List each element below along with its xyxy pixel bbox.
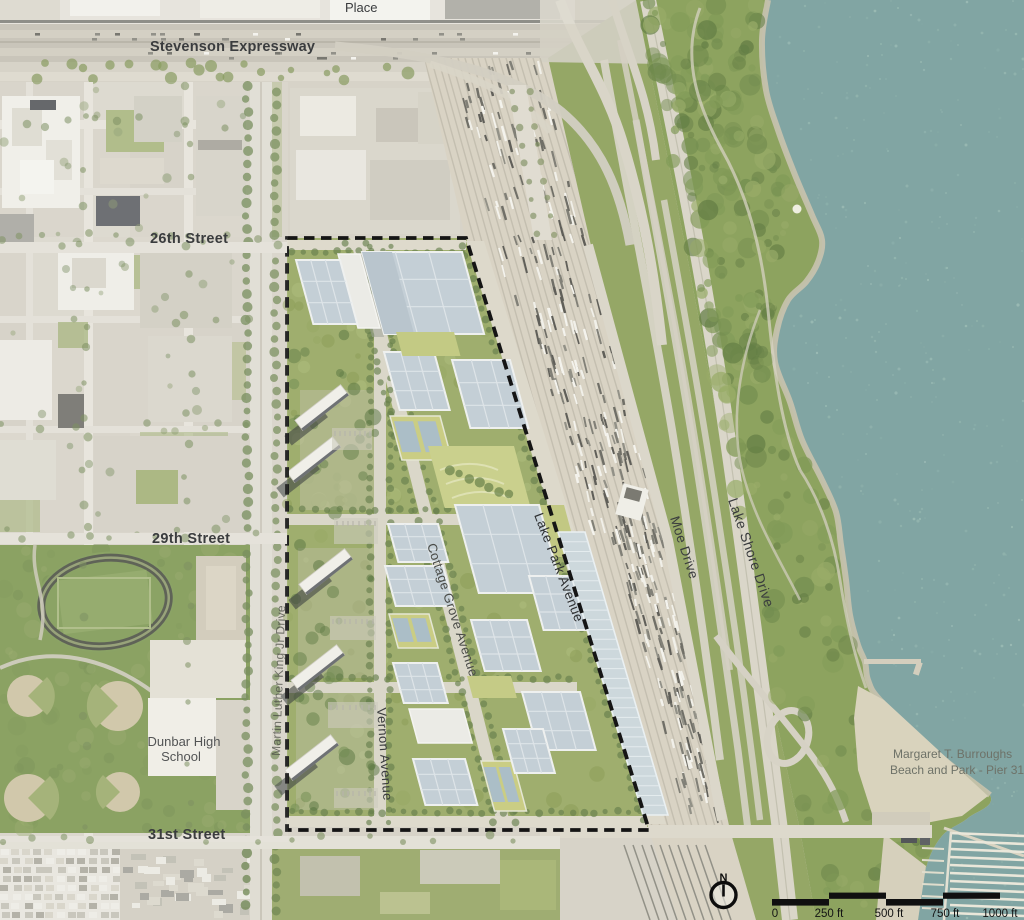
svg-text:Margaret T. Burroughs: Margaret T. Burroughs [893, 747, 1012, 761]
svg-text:Place: Place [345, 0, 378, 15]
svg-text:1000 ft: 1000 ft [982, 908, 1018, 920]
svg-text:26th Street: 26th Street [150, 231, 228, 247]
svg-text:Stevenson Expressway: Stevenson Expressway [150, 39, 315, 55]
svg-text:N: N [720, 872, 728, 884]
svg-text:250 ft: 250 ft [815, 908, 845, 920]
svg-text:750 ft: 750 ft [931, 908, 961, 920]
svg-text:29th Street: 29th Street [152, 531, 230, 547]
svg-text:31st Street: 31st Street [148, 827, 225, 843]
svg-text:0: 0 [772, 908, 778, 920]
svg-text:500 ft: 500 ft [875, 908, 905, 920]
svg-text:Beach and Park - Pier 31: Beach and Park - Pier 31 [890, 763, 1024, 777]
